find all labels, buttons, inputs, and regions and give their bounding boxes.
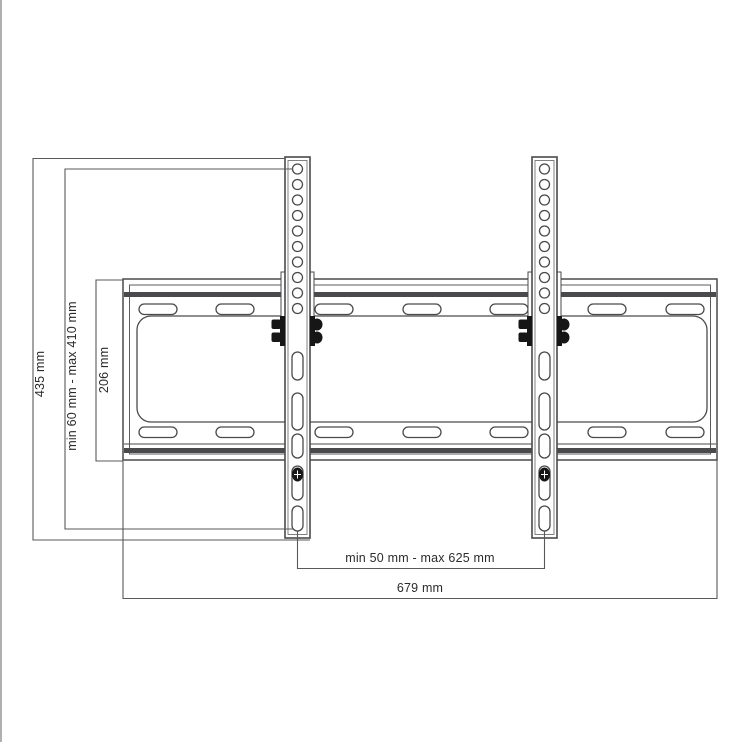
label-rail-height: 435 mm bbox=[33, 351, 47, 397]
mounting-slot bbox=[490, 427, 528, 438]
mounting-slot bbox=[403, 427, 441, 438]
mounting-slot bbox=[315, 427, 353, 438]
label-horizontal-range: min 50 mm - max 625 mm bbox=[345, 551, 495, 565]
mounting-slot bbox=[315, 304, 353, 315]
mounting-slot bbox=[216, 427, 254, 438]
label-vertical-range: min 60 mm - max 410 mm bbox=[65, 301, 79, 451]
mounting-slot-row-bottom bbox=[139, 427, 704, 438]
mounting-slot-row-top bbox=[139, 304, 704, 315]
label-plate-height: 206 mm bbox=[97, 347, 111, 393]
wall-plate-cutout bbox=[137, 316, 707, 422]
mounting-slot bbox=[666, 304, 704, 315]
label-plate-width: 679 mm bbox=[397, 581, 443, 595]
mounting-slot bbox=[216, 304, 254, 315]
wall-plate-bottom-fold bbox=[124, 448, 716, 453]
mounting-slot bbox=[666, 427, 704, 438]
mounting-slot bbox=[139, 427, 177, 438]
mounting-slot bbox=[490, 304, 528, 315]
wall-plate bbox=[123, 279, 717, 460]
mounting-slot bbox=[139, 304, 177, 315]
technical-drawing-page: 435 mm min 60 mm - max 410 mm 206 mm min… bbox=[0, 0, 742, 742]
mounting-slot bbox=[588, 427, 626, 438]
mounting-slot bbox=[588, 304, 626, 315]
tv-mount-drawing: 435 mm min 60 mm - max 410 mm 206 mm min… bbox=[0, 0, 742, 742]
wall-plate-top-fold bbox=[124, 292, 716, 297]
mounting-slot bbox=[403, 304, 441, 315]
